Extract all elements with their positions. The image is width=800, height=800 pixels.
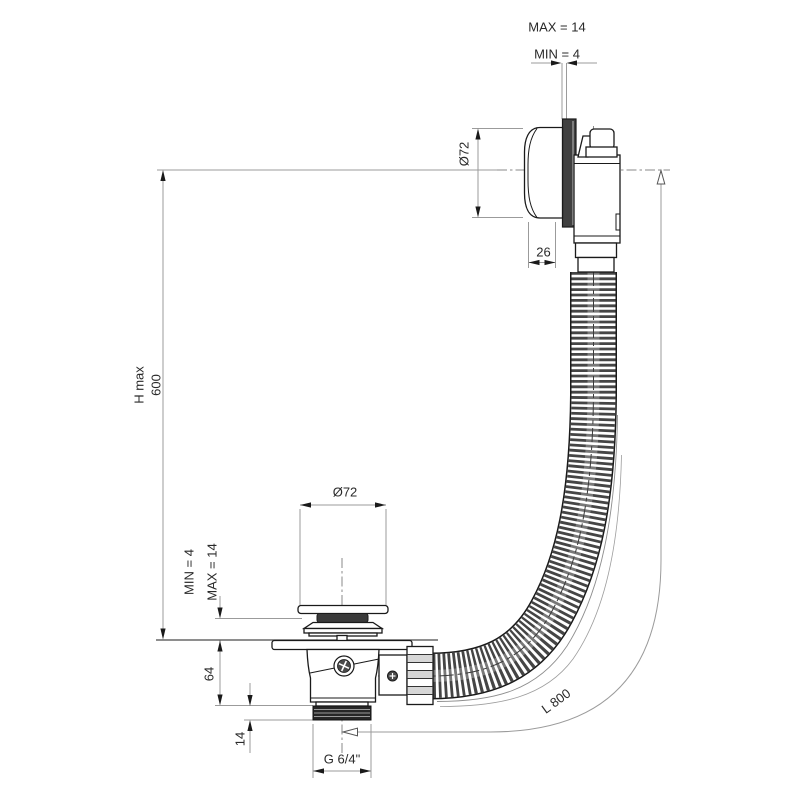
hose-nut-band-3 xyxy=(408,687,432,695)
drain-flange xyxy=(272,641,412,650)
label-overflow-gap-min: MIN = 4 xyxy=(534,47,580,62)
thread-spec-arrow-left xyxy=(313,768,324,773)
overflow-cap xyxy=(525,128,563,219)
body-height-arrow-bottom xyxy=(217,695,222,706)
label-overflow-offset: 26 xyxy=(536,245,550,260)
flexible-hose xyxy=(430,272,622,707)
hmax-arrow-top xyxy=(160,170,165,181)
technical-drawing-canvas: MAX = 14 MIN = 4 Ø72 26 H max 600 MIN = … xyxy=(0,0,800,800)
label-overflow-diameter: Ø72 xyxy=(457,142,472,167)
label-hose-length: L 800 xyxy=(539,686,574,717)
overflow-diameter-arrow-bottom xyxy=(475,207,480,218)
drain-thread-neck xyxy=(316,702,368,706)
thread-length-arrow-top xyxy=(247,695,252,706)
hose-nut xyxy=(407,647,433,705)
label-plug-gap-max: MAX = 14 xyxy=(205,543,220,600)
label-thread-spec: G 6/4" xyxy=(324,752,361,767)
hose-nut-band-2 xyxy=(408,671,432,679)
plug-diameter-arrow-left xyxy=(300,502,311,507)
plug-gap-arrow-top xyxy=(217,608,222,619)
plug-diameter-arrow-right xyxy=(375,502,386,507)
outlet-screw xyxy=(388,671,398,681)
plug-cone-rim xyxy=(304,629,382,634)
drain-assembly xyxy=(272,606,433,721)
thread-spec-arrow-right xyxy=(360,768,371,773)
label-plug-gap-min: MIN = 4 xyxy=(182,549,197,595)
overflow-body xyxy=(574,155,620,243)
label-height-name: H max xyxy=(132,366,147,404)
label-plug-diameter: Ø72 xyxy=(333,485,358,500)
label-height-value: 600 xyxy=(149,374,164,396)
cable-gland-knob xyxy=(590,129,614,149)
drain-screw xyxy=(334,656,354,676)
plug-seal-ring xyxy=(317,614,368,623)
hmax-arrow-bottom xyxy=(160,629,165,640)
overflow-neck-lower xyxy=(578,258,614,273)
thread-length-arrow-bottom xyxy=(247,720,252,731)
label-thread-length: 14 xyxy=(233,732,248,746)
overflow-neck-upper xyxy=(576,243,617,258)
cable-gland-base xyxy=(586,147,617,157)
offset26-arrow-left xyxy=(529,260,540,265)
plug-cone xyxy=(304,623,382,629)
label-body-height: 64 xyxy=(202,667,217,681)
hose-length-arrow-left xyxy=(343,728,358,736)
offset26-arrow-right xyxy=(545,260,556,265)
hose-nut-band-1 xyxy=(408,655,432,663)
overflow-diameter-arrow-top xyxy=(475,129,480,140)
plug-gap-arrow-bottom xyxy=(217,641,222,652)
drain-thread xyxy=(313,706,371,720)
bath-waste-overflow-drawing: MAX = 14 MIN = 4 Ø72 26 H max 600 MIN = … xyxy=(0,0,800,800)
label-overflow-gap-max: MAX = 14 xyxy=(528,20,585,35)
hose-length-arrow-top xyxy=(657,171,665,185)
plug-cap xyxy=(298,606,388,614)
